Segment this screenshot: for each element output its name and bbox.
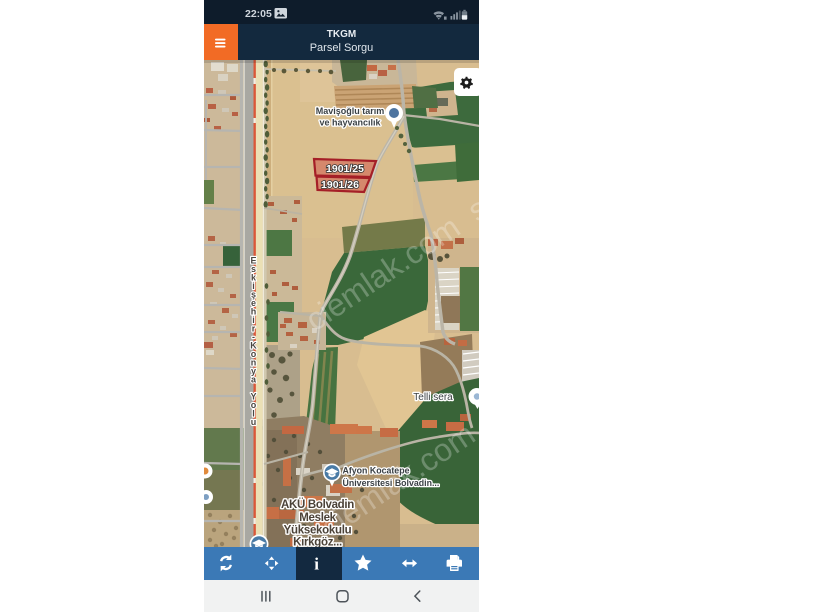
svg-text:Mavişoğlu tarım: Mavişoğlu tarım <box>316 106 385 116</box>
svg-text:Afyon Kocatepe: Afyon Kocatepe <box>343 465 410 475</box>
svg-text:AKÜ Bolvadin: AKÜ Bolvadin <box>281 498 354 511</box>
svg-text:Kırkgöz...: Kırkgöz... <box>293 536 342 547</box>
svg-text:i: i <box>314 555 319 574</box>
svg-text:ve hayvancılık: ve hayvancılık <box>319 117 381 127</box>
svg-text:Yüksekokulu: Yüksekokulu <box>284 524 352 536</box>
svg-text:1901/25: 1901/25 <box>326 163 364 175</box>
svg-text:1901/26: 1901/26 <box>321 179 359 191</box>
svg-text:Meslek: Meslek <box>299 512 336 524</box>
svg-text:Telli sera: Telli sera <box>413 392 453 403</box>
svg-text:Üniversitesi Bolvadin...: Üniversitesi Bolvadin... <box>343 478 440 488</box>
